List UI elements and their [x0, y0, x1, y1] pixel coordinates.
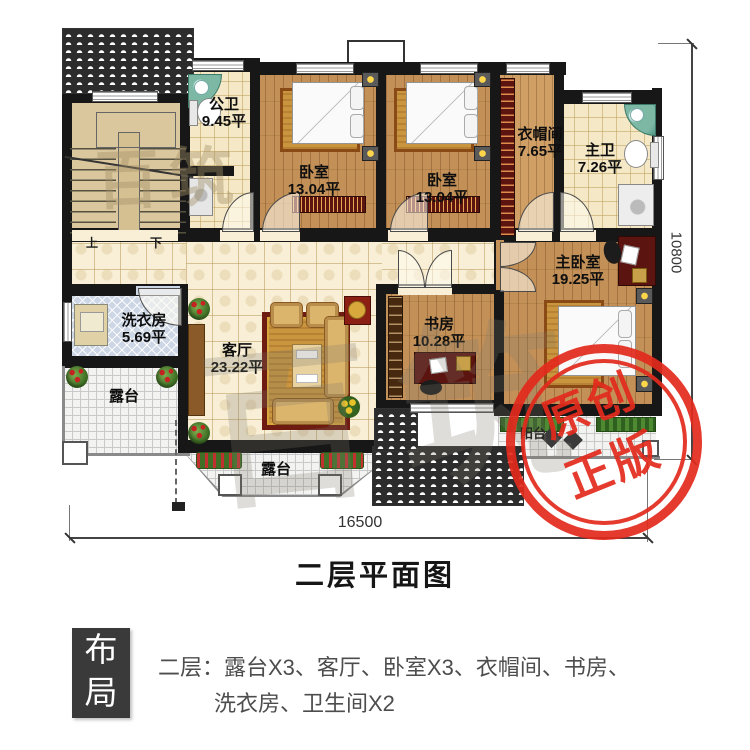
layout-badge-label: 布局 [81, 630, 121, 716]
room-label-terrace-left: 露台 [74, 388, 174, 405]
dimension-height-label: 10800 [668, 223, 685, 283]
pillow-icon [464, 86, 478, 110]
stairs-down-label: 下 [150, 234, 162, 251]
faucet-icon [630, 108, 644, 122]
bowl-icon [348, 301, 366, 319]
window [506, 63, 550, 74]
faucet-icon [194, 80, 209, 95]
page: 上 下 [0, 0, 750, 750]
stair-railing [96, 112, 176, 148]
layout-badge: 布局 [72, 628, 130, 718]
flowers-icon [338, 396, 360, 418]
bay-window [410, 403, 494, 413]
room-label-terrace-bottom: 露台 [226, 461, 326, 478]
papers-icon [429, 357, 448, 374]
pillar [62, 441, 88, 465]
chair-icon [420, 380, 442, 395]
dresser-icon [292, 196, 366, 213]
wall-stub [172, 502, 185, 511]
nightstand-icon [636, 288, 653, 304]
layout-description: 二层：露台X3、客厅、卧室X3、衣帽间、书房、 洗衣房、卫生间X2 [158, 650, 698, 722]
room-label-living-room: 客厅23.22平 [187, 342, 287, 376]
wall [186, 166, 234, 176]
plant-icon [66, 366, 88, 388]
room-label-laundry: 洗衣房5.69平 [94, 312, 194, 346]
layout-line2: 洗衣房、卫生间X2 [158, 686, 698, 722]
flowerbox-icon [320, 452, 364, 469]
room-label-study: 书房10.28平 [389, 316, 489, 350]
plant-icon [156, 366, 178, 388]
nightstand-icon [362, 72, 379, 87]
shower-icon [618, 184, 654, 226]
armchair-icon [270, 302, 303, 328]
room-label-master-bedroom: 主卧室19.25平 [528, 254, 628, 288]
window [63, 302, 72, 342]
washbasin-icon [189, 178, 213, 216]
roof-top-left [62, 28, 194, 94]
nightstand-icon [474, 146, 491, 161]
section-dashed-line [175, 420, 179, 504]
pillow-icon [350, 114, 364, 138]
desk-lamp-icon [456, 356, 471, 371]
window [92, 91, 158, 102]
window [192, 60, 244, 71]
room-label-public-bath: 公卫9.45平 [174, 96, 274, 130]
stair-treads [140, 148, 186, 236]
pillow-icon [350, 86, 364, 110]
toilet-tank-icon [650, 142, 659, 168]
roof-bottom-column [374, 408, 418, 452]
extension-line [658, 43, 694, 44]
window [582, 92, 632, 103]
nightstand-icon [474, 72, 491, 87]
table-runner [296, 374, 318, 383]
room-label-master-bath: 主卫7.26平 [550, 142, 650, 176]
page-title: 二层平面图 [200, 552, 550, 594]
room-label-bedroom2: 卧室13.04平 [392, 172, 492, 206]
roof-bottom [372, 446, 524, 506]
sofa-icon [324, 316, 349, 398]
table-runner [296, 350, 318, 359]
sofa-icon [272, 398, 334, 425]
room-label-bedroom1: 卧室13.04平 [264, 164, 364, 198]
window [420, 63, 478, 74]
desk-lamp-icon [632, 268, 647, 283]
stairs-up-label: 上 [86, 234, 98, 251]
nightstand-icon [362, 146, 379, 161]
pillow-icon [464, 114, 478, 138]
layout-line1: 二层：露台X3、客厅、卧室X3、衣帽间、书房、 [158, 650, 698, 686]
window [296, 63, 354, 74]
plant-icon [188, 422, 210, 444]
dimension-width-label: 16500 [260, 514, 460, 532]
